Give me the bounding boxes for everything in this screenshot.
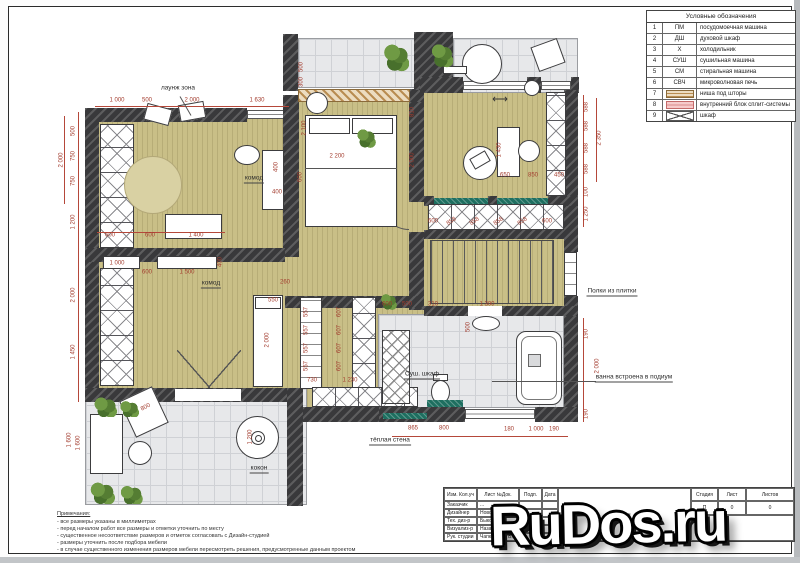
annotation-label: ванна встроена в подиум xyxy=(595,374,673,383)
legend-row-number: 9 xyxy=(647,111,663,121)
dim-label: 1 600 xyxy=(67,432,74,447)
annotation-label: комод xyxy=(201,280,221,289)
dim-label: 865 xyxy=(408,426,418,433)
dim-label: 600 xyxy=(428,219,438,226)
dim-line-bottom xyxy=(392,436,568,437)
dim-label: 2 350 xyxy=(597,130,604,145)
dim-label: 2 100 xyxy=(302,120,309,135)
dim-label: 500 xyxy=(299,62,306,72)
legend-symbol-cell: СВЧ xyxy=(663,78,697,88)
legend-description: сушильная машина xyxy=(697,56,795,66)
drawing-page: 1 0005002 0001 6302 0005007507501 2002 0… xyxy=(0,0,800,563)
title-block-sign xyxy=(519,501,542,509)
pink-symbol xyxy=(666,101,694,109)
closet-xbox-column xyxy=(352,297,376,389)
title-block-header: Дата xyxy=(542,488,558,501)
dim-label: 600 xyxy=(145,233,155,240)
dim-label: 600 xyxy=(142,270,152,277)
dim-label: 2 000 xyxy=(595,358,602,373)
legend-description: посудомоечная машина xyxy=(697,23,795,33)
note-line: - все размеры указаны в миллиметрах xyxy=(57,519,392,526)
legend-row: 5СМстиральная машина xyxy=(647,67,795,78)
door-opening-bd3 xyxy=(175,389,241,401)
dim-label: 400 xyxy=(272,190,282,197)
stage-value: П xyxy=(691,501,718,515)
wall-bottom-a xyxy=(303,407,381,422)
dresser-bedroom3-b xyxy=(157,256,217,269)
dim-label: 1 250 xyxy=(584,206,591,221)
desk-chair-office xyxy=(518,140,540,162)
legend-description: микроволновая печь xyxy=(697,78,795,88)
plant-bedroom2 xyxy=(356,128,376,148)
legend-row-number: 8 xyxy=(647,100,663,110)
legend-row: 4СУШсушильная машина xyxy=(647,56,795,67)
legend-description: стиральная машина xyxy=(697,67,795,77)
dim-label: 600 xyxy=(382,302,392,309)
dim-label: 1 300 xyxy=(479,302,494,309)
window-top-bedroom1 xyxy=(247,110,285,119)
legend-symbol-cell: СМ xyxy=(663,67,697,77)
wall-balcony2-left xyxy=(283,34,298,91)
dim-label: 557 xyxy=(304,361,311,371)
stage-header: Стадия xyxy=(691,488,718,501)
dim-label: 2 000 xyxy=(59,152,66,167)
title-block-name: Назарова А. xyxy=(477,525,519,533)
title-block-header: Изм. Кол.уч xyxy=(444,488,477,501)
dim-label: 1 200 xyxy=(248,429,255,444)
dim-label: 190 xyxy=(549,427,559,434)
drawing-title: План xyxy=(558,488,691,541)
dim-label: 450 xyxy=(554,173,564,180)
warm-strip-bottom xyxy=(383,413,427,419)
stage-value: 0 xyxy=(746,501,794,515)
dim-line-left xyxy=(78,112,79,402)
note-line: - размеры уточнить после подбора мебели xyxy=(57,540,392,547)
dim-label: 500 xyxy=(466,322,473,332)
title-block-role: Тех. диз-р xyxy=(444,517,477,525)
door-leaf-left xyxy=(177,350,210,388)
title-block-name: ... xyxy=(477,501,519,509)
legend-symbol-cell xyxy=(663,111,697,121)
dim-label: 2 000 xyxy=(265,332,272,347)
plant-terrace-3 xyxy=(88,482,116,504)
legend-symbol-cell: ДШ xyxy=(663,34,697,44)
bed-pillow-1 xyxy=(309,118,350,134)
dim-label: 1 500 xyxy=(179,270,194,277)
dim-label: 800 xyxy=(439,426,449,433)
window-balcony3-a xyxy=(463,81,527,90)
dim-label: 588 xyxy=(584,164,591,174)
dim-label: 1 630 xyxy=(249,98,264,105)
dim-label: 850 xyxy=(528,173,538,180)
notes-block: Примечания: - все размеры указаны в милл… xyxy=(57,511,392,554)
title-block-sign xyxy=(519,525,542,533)
dim-label: 2 200 xyxy=(329,154,344,161)
dim-label: 607 xyxy=(337,325,344,335)
wardrobe-office xyxy=(546,92,566,196)
title-block-sign xyxy=(519,517,542,525)
title-block: Изм. Кол.учЛист №Док.Подп.ДатаЗаказчик..… xyxy=(443,487,795,542)
note-line: - существенное несоответствие размеров и… xyxy=(57,533,392,540)
wall-right-upper xyxy=(564,90,578,252)
legend-symbol-cell: ПМ xyxy=(663,23,697,33)
title-block-sign xyxy=(519,509,542,517)
dim-label: 1 000 xyxy=(109,98,124,105)
legend-table: Условные обозначения 1ПМпосудомоечная ма… xyxy=(646,10,796,122)
legend-description: духовой шкаф xyxy=(697,34,795,44)
stool-balcony xyxy=(524,80,540,96)
notes-title: Примечания: xyxy=(57,511,392,518)
dim-label: 190 xyxy=(584,409,591,419)
dim-line-top xyxy=(95,106,289,107)
legend-row-number: 4 xyxy=(647,56,663,66)
dim-label: 500 xyxy=(71,126,78,136)
dim-label: 260 xyxy=(280,280,290,287)
dim-label: 557 xyxy=(304,343,311,353)
toilet-platform xyxy=(427,400,463,407)
annotation-label: Суш. шкаф xyxy=(404,371,440,380)
title-block-date xyxy=(542,501,558,509)
legend-row-number: 1 xyxy=(647,23,663,33)
title-block-name: Быкова А. xyxy=(477,517,519,525)
dim-label: 750 xyxy=(71,176,78,186)
stairs xyxy=(430,240,554,304)
rug-bedroom1 xyxy=(124,156,182,214)
legend-row: 7ниша под шторы xyxy=(647,89,795,100)
dim-label: 2 000 xyxy=(410,152,417,167)
legend-description: ниша под шторы xyxy=(697,89,795,99)
dim-label: 1 600 xyxy=(76,435,83,450)
chair-bedroom2 xyxy=(306,92,328,114)
title-block-role: Заказчик xyxy=(444,501,477,509)
legend-row-number: 5 xyxy=(647,67,663,77)
plant-terrace-2 xyxy=(118,401,140,417)
niche-shelves xyxy=(564,252,577,296)
dim-label: 730 xyxy=(307,378,317,385)
dim-label: 400 xyxy=(218,257,225,267)
title-block-role: Рук. студии xyxy=(444,533,477,541)
stripes-symbol xyxy=(666,90,694,98)
window-balcony3-b xyxy=(541,81,571,90)
bathtub-inner xyxy=(521,336,557,400)
legend-symbol-cell xyxy=(663,100,697,110)
legend-row-number: 2 xyxy=(647,34,663,44)
dim-label: 1 430 xyxy=(497,142,504,157)
plant-terrace-4 xyxy=(118,486,144,504)
legend-row: 2ДШдуховой шкаф xyxy=(647,34,795,45)
annotation-label: тёплая стена xyxy=(369,437,411,446)
dim-label: 310 xyxy=(428,302,438,309)
legend-row: 8внутренний блок сплит-системы xyxy=(647,100,795,111)
dim-label: 500 xyxy=(402,302,412,309)
legend-row: 1ПМпосудомоечная машина xyxy=(647,23,795,34)
dim-label: 1 230 xyxy=(342,378,357,385)
x-symbol xyxy=(666,111,694,121)
title-block-date xyxy=(542,517,558,525)
window-bottom xyxy=(465,409,535,419)
dim-label: 1 000 xyxy=(109,261,124,268)
legend-row: 6СВЧмикроволновая печь xyxy=(647,78,795,89)
dim-label: 300 xyxy=(299,77,306,87)
dim-label: 100 xyxy=(584,187,591,197)
dim-label: 600 xyxy=(298,172,305,182)
legend-row: 3Ххолодильник xyxy=(647,45,795,56)
dim-label: 650 xyxy=(500,173,510,180)
stage-header: Листов xyxy=(746,488,794,501)
dim-label: 607 xyxy=(337,361,344,371)
wall-under-wardrobe-row xyxy=(424,230,578,239)
dim-label: 1 000 xyxy=(528,427,543,434)
legend-symbol-cell: СУШ xyxy=(663,56,697,66)
dresser-bedroom1 xyxy=(262,150,284,210)
dim-label: 400 xyxy=(274,162,281,172)
dim-label: 607 xyxy=(337,343,344,353)
bath-label-leader xyxy=(492,381,596,382)
hanging-chair-core xyxy=(255,435,262,442)
legend-symbol-cell: Х xyxy=(663,45,697,55)
dim-label: 600 xyxy=(105,233,115,240)
dim-label: 607 xyxy=(337,307,344,317)
annotation-label: лаунж зона xyxy=(161,85,195,92)
dim-label: 557 xyxy=(304,325,311,335)
legend-description: внутренний блок сплит-системы xyxy=(697,100,795,110)
wall-bottom-c xyxy=(535,407,578,422)
title-block-date xyxy=(542,525,558,533)
dim-label: 1 450 xyxy=(71,344,78,359)
dim-label: 1 400 xyxy=(188,233,203,240)
annotation-label: кокон xyxy=(250,465,269,474)
dim-label: 1 200 xyxy=(71,214,78,229)
page-edge-bottom xyxy=(0,557,800,563)
wardrobe-bedroom3 xyxy=(100,268,134,386)
stage-value: 0 xyxy=(718,501,746,515)
legend-description: шкаф xyxy=(697,111,795,121)
title-block-sign xyxy=(519,533,542,541)
annotation-label: ⟷ xyxy=(492,97,508,104)
dim-label: 600 xyxy=(542,219,552,226)
annotation-label: комод xyxy=(244,175,264,184)
plant-terrace-1 xyxy=(92,397,118,417)
legend-rows: 1ПМпосудомоечная машина2ДШдуховой шкаф3Х… xyxy=(647,23,795,121)
drying-cabinet xyxy=(382,330,410,404)
dim-label: 180 xyxy=(504,427,514,434)
sofa-terrace xyxy=(90,414,123,474)
note-line: - в случае существенного изменения разме… xyxy=(57,547,392,554)
plant-balcony-right xyxy=(431,42,453,68)
dim-label: 550 xyxy=(268,298,278,305)
studio-cell xyxy=(691,515,794,541)
title-block-name: Новожён А. xyxy=(477,509,519,517)
legend-description: холодильник xyxy=(697,45,795,55)
table-balcony xyxy=(462,44,502,84)
wall-terrace-right xyxy=(287,388,303,506)
legend-row-number: 3 xyxy=(647,45,663,55)
legend-row-number: 7 xyxy=(647,89,663,99)
plant-balcony-top xyxy=(383,42,409,72)
dim-label: 588 xyxy=(584,102,591,112)
title-block-header: Лист №Док. xyxy=(477,488,519,501)
legend-row: 9шкаф xyxy=(647,111,795,121)
dim-label: 2 000 xyxy=(71,287,78,302)
dim-label: 588 xyxy=(584,121,591,131)
title-block-role: Дизайнер xyxy=(444,509,477,517)
vanity-bedroom1 xyxy=(234,145,260,165)
title-block-date xyxy=(542,533,558,541)
dim-label: 190 xyxy=(584,329,591,339)
dim-label: 557 xyxy=(304,307,311,317)
bath-drain xyxy=(528,354,541,367)
legend-title: Условные обозначения xyxy=(647,11,795,23)
dim-line-bd1-bottom xyxy=(97,232,225,233)
dim-label: 500 xyxy=(142,98,152,105)
title-block-name: Чапковский Б. xyxy=(477,533,519,541)
legend-row-number: 6 xyxy=(647,78,663,88)
notes-lines: - все размеры указаны в миллиметрах- пер… xyxy=(57,519,392,554)
wall-under-balcony3-a xyxy=(420,77,463,93)
sink xyxy=(472,316,500,331)
title-block-role: Визуализ-р xyxy=(444,525,477,533)
dim-label: 750 xyxy=(71,151,78,161)
side-table-terrace xyxy=(128,441,152,465)
dim-label: 588 xyxy=(584,143,591,153)
note-line: - перед началом работ все размеры и отме… xyxy=(57,526,392,533)
title-block-date xyxy=(542,509,558,517)
stage-header: Лист xyxy=(718,488,746,501)
annotation-label: Полки из плитки xyxy=(586,288,637,297)
dim-label: 2 000 xyxy=(184,98,199,105)
dim-label: 810 xyxy=(410,107,417,117)
title-block-header: Подп. xyxy=(519,488,542,501)
door-leaf-right xyxy=(208,350,241,388)
legend-symbol-cell xyxy=(663,89,697,99)
bed-blanket-line xyxy=(305,168,397,169)
